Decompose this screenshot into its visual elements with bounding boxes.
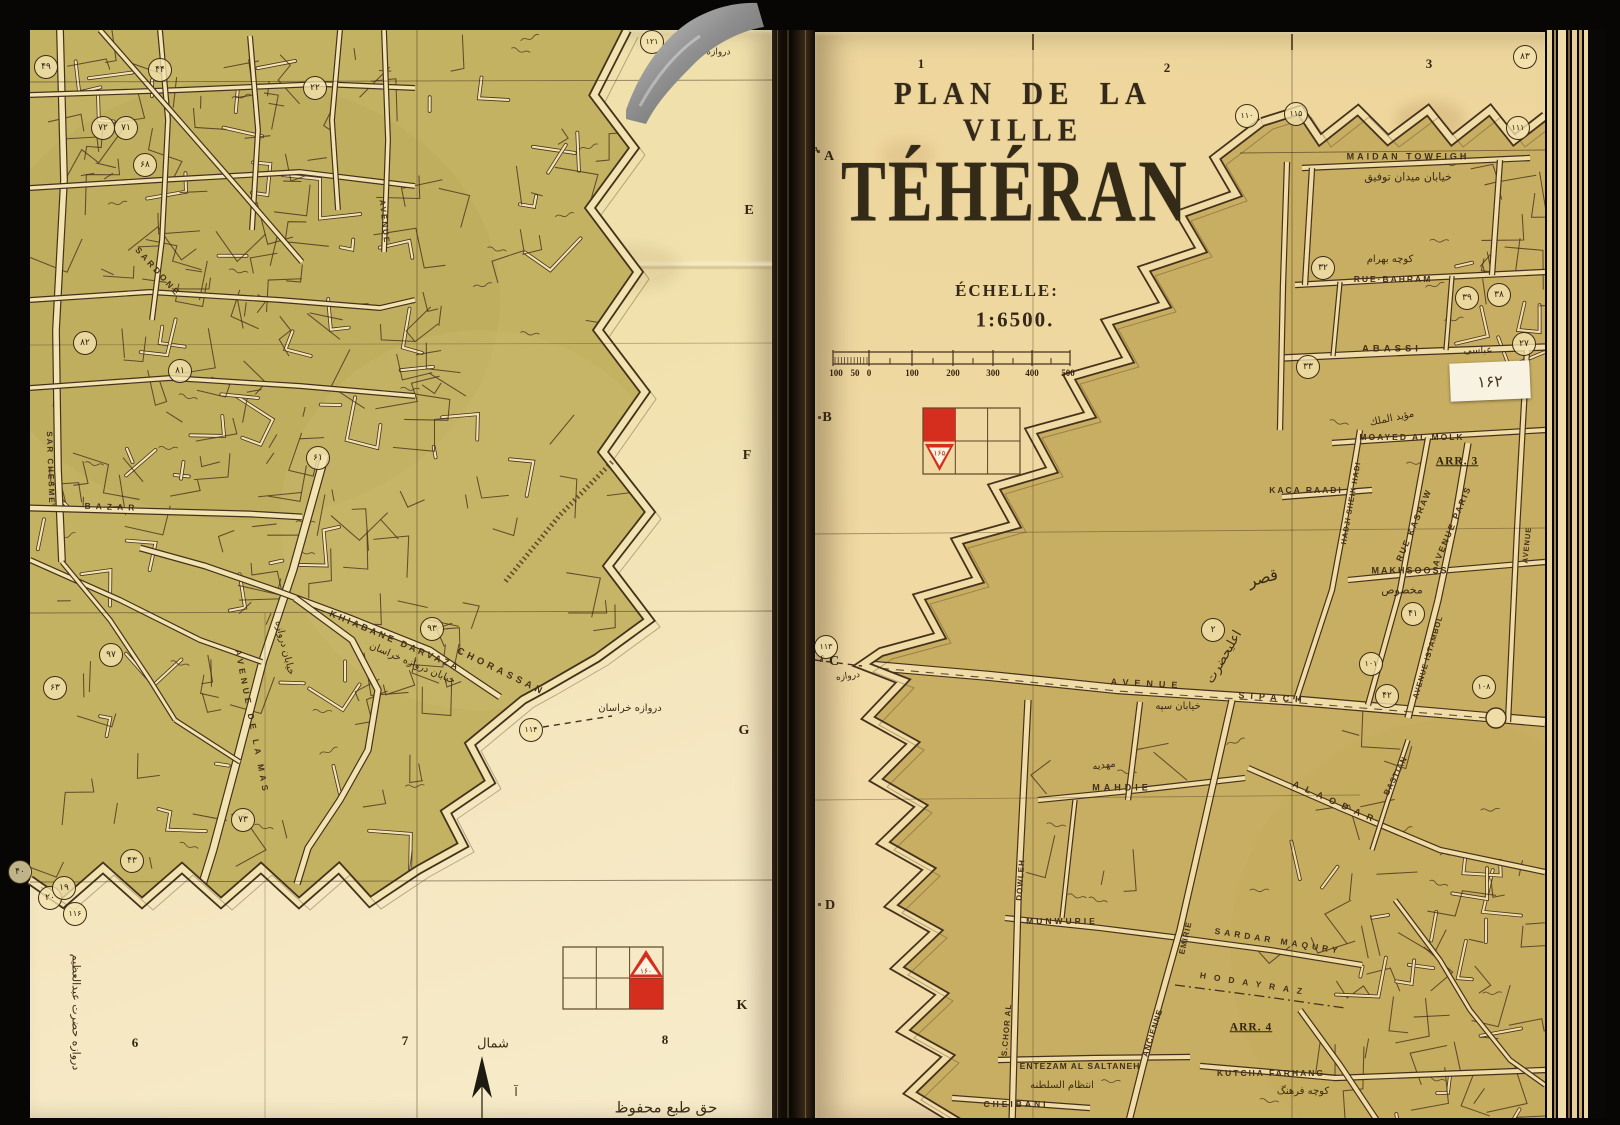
book-photo: KHIABANE DARVAZACHORASSANخيابان دروازه خ… [0, 0, 1620, 1125]
bookmark-ribbon [0, 0, 1620, 1125]
